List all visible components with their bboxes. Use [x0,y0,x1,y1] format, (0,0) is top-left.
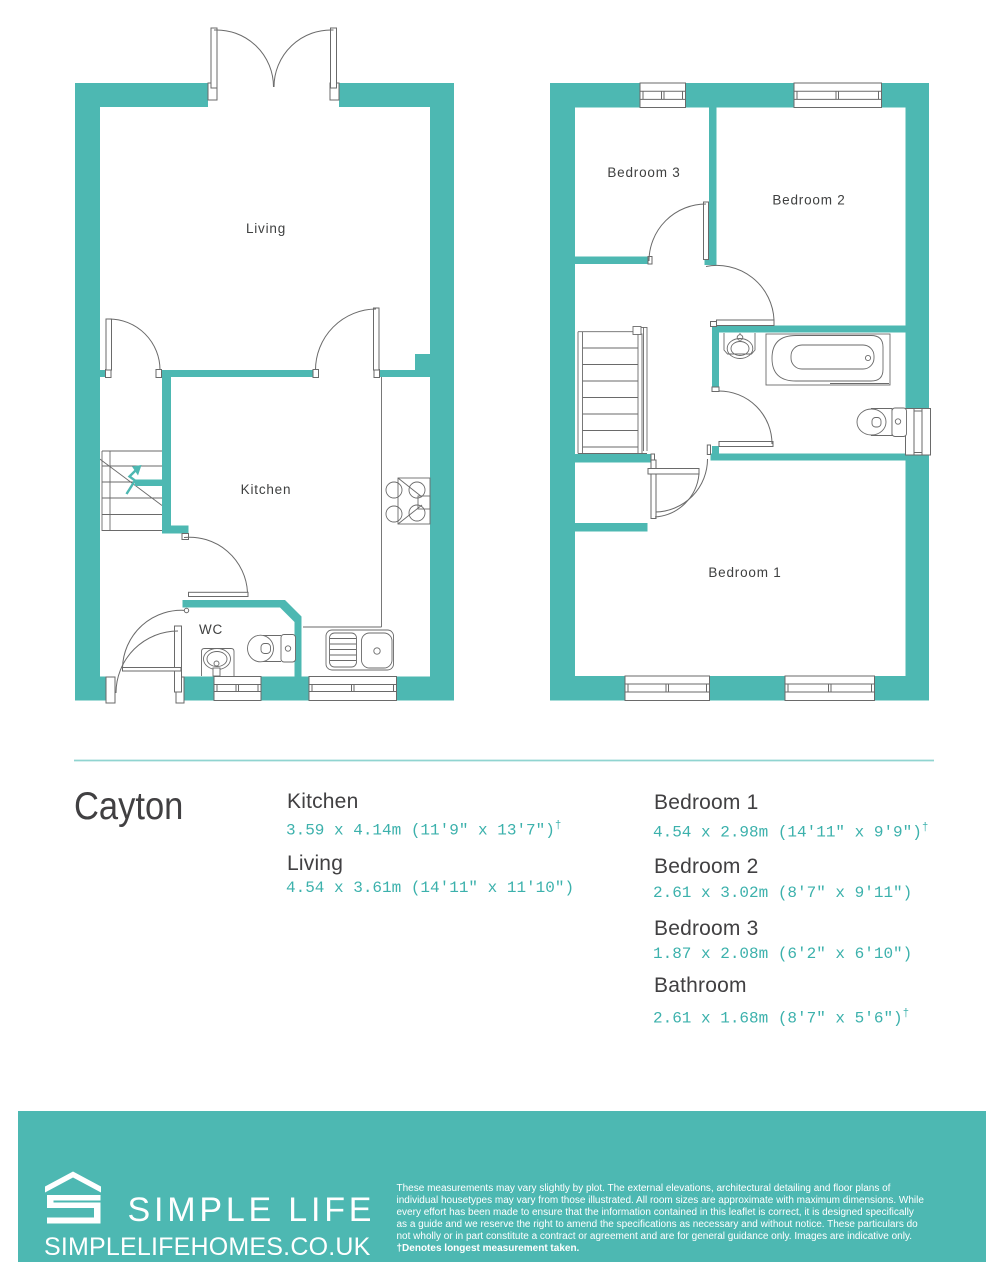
svg-text:Kitchen: Kitchen [241,482,292,497]
svg-text:Bedroom 3: Bedroom 3 [607,165,680,180]
svg-text:Living: Living [246,221,286,236]
svg-text:Bedroom 2: Bedroom 2 [772,193,845,208]
svg-text:Bedroom 1: Bedroom 1 [708,565,781,580]
svg-text:WC: WC [199,622,223,637]
